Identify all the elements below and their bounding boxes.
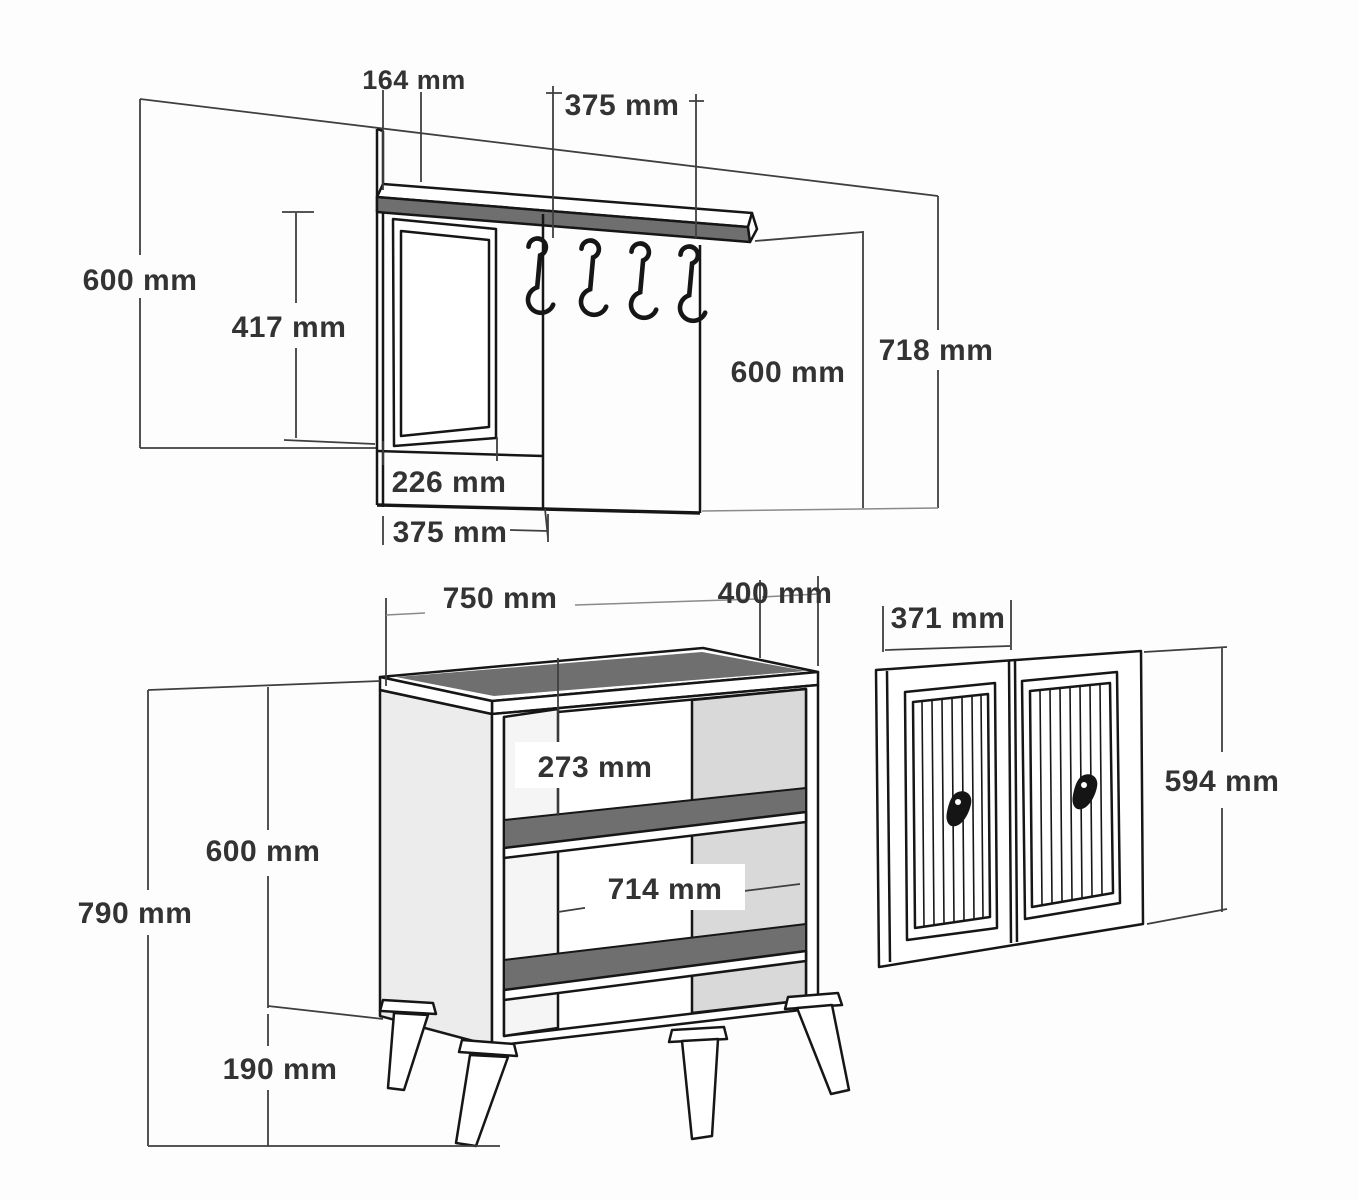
dim-label-cabinet-body-height: 600 mm	[206, 835, 321, 868]
dim-label-cabinet-depth: 400 mm	[718, 577, 833, 610]
shoe-cabinet-drawing: 750 mm 400 mm 600 mm 790 mm 190 mm 273 m…	[78, 576, 849, 1146]
dim-label-cabinet-width: 750 mm	[443, 582, 558, 615]
dim-label-hook-panel-width: 375 mm	[565, 89, 680, 122]
dim-label-panel-width-bottom: 375 mm	[393, 516, 508, 549]
mirror-door-frame	[393, 219, 496, 446]
cabinet-left-side-face	[380, 690, 492, 1046]
leg-mount-plate	[459, 1040, 517, 1056]
dim-label-mirror-width: 226 mm	[392, 466, 507, 499]
wall-top-extension-line	[140, 99, 938, 196]
furniture-diagram: 164 mm 375 mm 600 mm 417 mm 600 mm 718 m…	[0, 0, 1358, 1200]
cabinet-top-extension-line	[148, 681, 380, 690]
cabinet-leg	[388, 1013, 428, 1090]
dim-label-hook-panel-height: 600 mm	[731, 356, 846, 389]
coat-hook-icon	[631, 244, 656, 318]
door-knob-highlight	[955, 799, 961, 805]
dim-label-mirror-height: 417 mm	[232, 311, 347, 344]
dim-label-leg-height: 190 mm	[223, 1053, 338, 1086]
mirror-bottom-rail-line	[377, 451, 543, 456]
dim-label-shelf-gap: 273 mm	[538, 751, 653, 784]
cabinet-leg	[797, 1005, 849, 1094]
dimension-drawing-canvas: 164 mm 375 mm 600 mm 417 mm 600 mm 718 m…	[0, 0, 1358, 1200]
dim-label-shelf-depth: 164 mm	[362, 65, 466, 95]
coat-hook-icon	[528, 239, 553, 313]
coat-hook-icon	[581, 241, 606, 315]
dim-label-total-height: 718 mm	[879, 334, 994, 367]
door-knob-highlight	[1081, 782, 1087, 788]
cabinet-leg	[456, 1055, 508, 1146]
dim-label-inner-width: 714 mm	[608, 873, 723, 906]
dim-label-cabinet-total-height: 790 mm	[78, 897, 193, 930]
bottom-right-extension-line	[702, 508, 938, 511]
coat-rack-drawing: 164 mm 375 mm 600 mm 417 mm 600 mm 718 m…	[83, 65, 994, 549]
cabinet-leg	[682, 1039, 718, 1139]
dim-label-left-height: 600 mm	[83, 264, 198, 297]
panel-bottom-edge	[377, 505, 700, 513]
shelf-depth-dim-ticks	[383, 90, 421, 190]
coat-hook-icon	[680, 247, 705, 321]
dim-label-door-width: 371 mm	[891, 602, 1006, 635]
dim-label-door-height: 594 mm	[1165, 765, 1280, 798]
cabinet-doors-drawing: 371 mm 594 mm	[876, 600, 1279, 967]
leg-mount-plate	[380, 1000, 436, 1014]
